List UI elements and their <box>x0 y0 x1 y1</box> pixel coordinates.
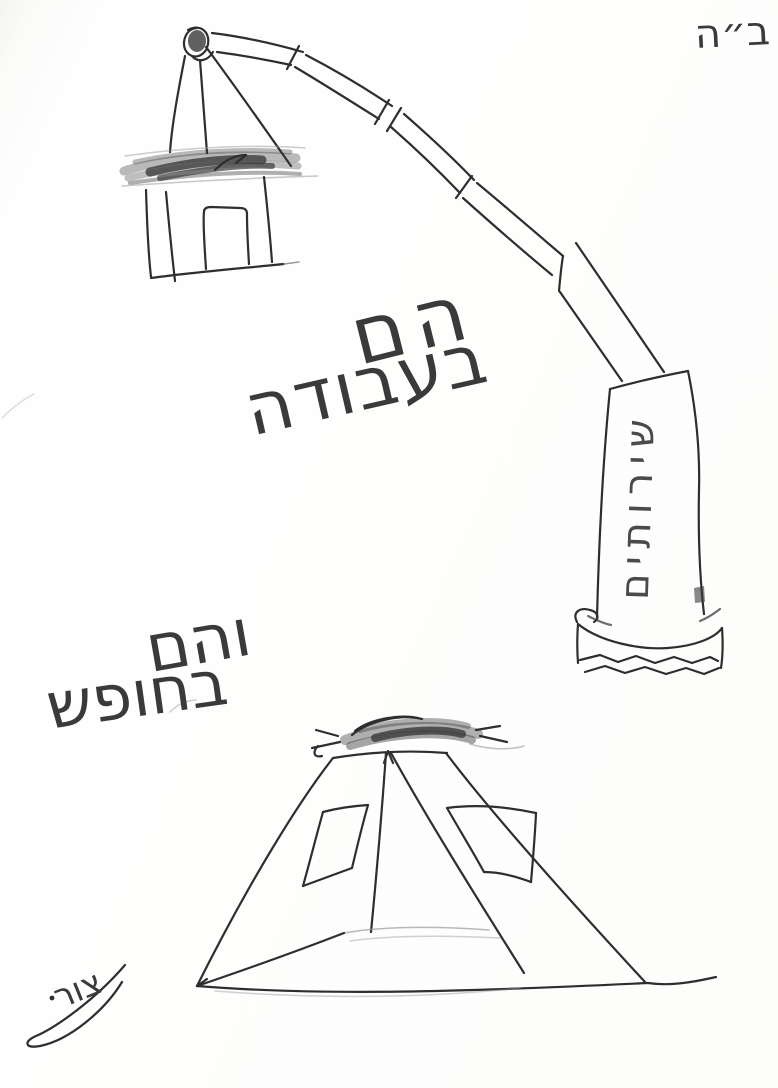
stray-line <box>2 394 34 418</box>
tower-neck-left <box>170 56 185 152</box>
tent-bottom-edge <box>197 983 648 992</box>
boom-elbow <box>559 256 563 291</box>
facade-bottom-edge <box>151 264 284 278</box>
tower-neck-right <box>200 60 207 153</box>
tent-right-slope <box>446 753 645 982</box>
tub-rim <box>578 624 722 648</box>
facade-right-edge <box>264 177 272 262</box>
signature-text: צור <box>48 962 108 1017</box>
tent-center-seam <box>371 753 386 932</box>
pulley-knob-scribble <box>184 28 213 61</box>
tent-diagonal-seam <box>391 753 524 973</box>
signature: צור <box>27 962 125 1047</box>
pillar-drawing: שירותים <box>597 371 705 617</box>
tent-drawing <box>170 700 716 996</box>
nest-scribble-tower <box>122 146 318 186</box>
caption-vacation-line2: בחופש <box>42 646 232 745</box>
scanned-sketch-page: שירותים <box>0 0 778 1088</box>
facade-left-edge <box>146 190 151 277</box>
tub-base-drawing <box>575 609 722 674</box>
water-zigzag <box>580 655 718 663</box>
boom-joint <box>456 176 472 198</box>
tent-fold-line <box>344 927 489 933</box>
water-zigzag <box>585 666 719 674</box>
pillar-mark <box>694 586 705 603</box>
tent-left-window <box>303 805 368 886</box>
pillar-label: שירותים <box>612 411 665 601</box>
tub-right-wall <box>721 628 723 668</box>
tent-left-slope <box>197 758 333 986</box>
bh-header: ב״ה <box>694 8 771 58</box>
nest-scribble-tent <box>312 717 524 757</box>
pencil-sketch: שירותים <box>0 0 778 1088</box>
caption-work: הם בעבודה <box>237 263 496 452</box>
boom-joint <box>387 108 401 131</box>
doorway-arch <box>204 207 249 269</box>
tub-left-wall <box>577 624 578 663</box>
pillar-right-edge <box>688 371 704 614</box>
caption-vacation: והם בחופש <box>42 594 256 745</box>
facade-left-inner-edge <box>166 192 175 281</box>
pillar-left-edge <box>597 389 610 617</box>
boom-joint <box>375 100 389 124</box>
